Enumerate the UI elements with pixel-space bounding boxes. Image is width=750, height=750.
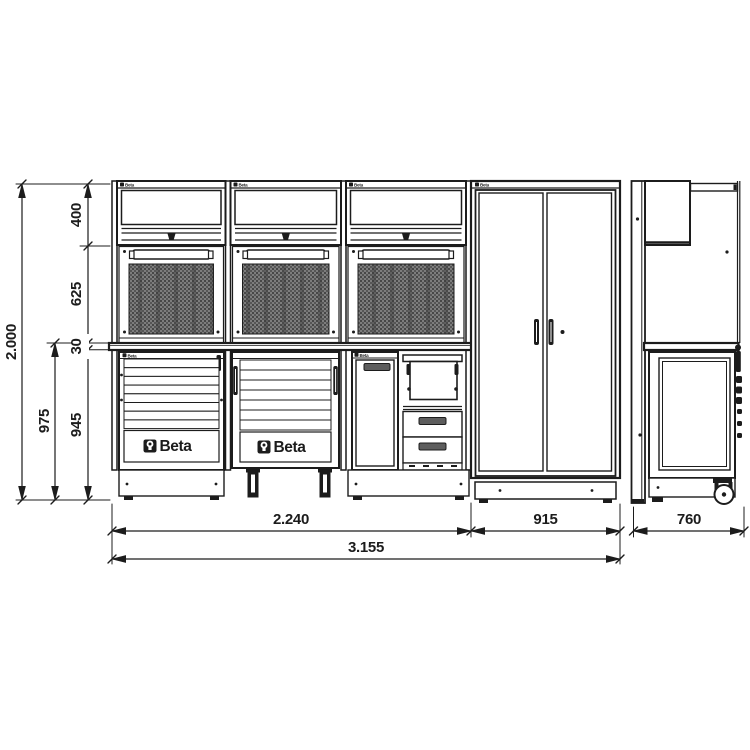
tall-cabinet: Beta (471, 181, 620, 503)
brand-text: Beta (239, 183, 249, 188)
dim-base-cabinet-label: 945 (68, 413, 85, 437)
wall-cabinet-2: Beta (231, 181, 342, 245)
wall-cabinet-3: Beta (346, 181, 466, 245)
caster-side (713, 478, 734, 504)
left-door (479, 193, 543, 471)
dim-tall-cabinet-width-label: 915 (533, 511, 557, 528)
waste-bin-module (403, 355, 462, 470)
brand-text: Beta (128, 353, 138, 358)
worktop-side (644, 343, 739, 350)
drawer-stack (124, 359, 219, 429)
brand-text: Beta (354, 183, 364, 188)
dim-bench-width-label: 2.240 (273, 511, 309, 528)
beta-logo-big: Beta (258, 439, 307, 456)
front-elevation: Beta Beta Beta (109, 181, 620, 503)
vent-handle (364, 364, 390, 371)
dim-total-width-label: 3.155 (348, 539, 384, 556)
caster-right (318, 468, 332, 498)
cabinet-side (649, 352, 735, 478)
brand-text: Beta (125, 183, 135, 188)
brand-text: Beta (480, 183, 490, 188)
beta-logo-big: Beta (144, 438, 193, 455)
workbench-top (109, 343, 473, 350)
brand-text: Beta (274, 439, 307, 456)
shelf (133, 250, 210, 259)
service-module-bay-3: Beta (348, 352, 469, 500)
dim-panel-label: 625 (68, 282, 85, 306)
workshop-system-drawing: Beta Beta Beta (0, 0, 750, 750)
keyhole (561, 330, 565, 334)
tool-panel-bay-1 (119, 247, 224, 344)
plinth (119, 470, 224, 500)
bin-flap (410, 362, 457, 400)
tool-panel-bay-2 (233, 247, 340, 344)
shelf (362, 250, 450, 259)
hinge-bar (403, 355, 462, 362)
brand-text: Beta (360, 353, 370, 358)
plinth (348, 470, 469, 500)
tool-panel-bay-3 (348, 247, 464, 344)
technical-drawing-page: Beta Beta Beta (0, 0, 750, 750)
dim-total-height-label: 2.000 (3, 324, 20, 360)
dim-worktop-thickness-label: 30 (68, 338, 85, 354)
caster-left (246, 468, 260, 498)
dim-worktop-height-label: 975 (36, 409, 53, 433)
drawer-handle (419, 443, 446, 450)
canopy-rail (691, 184, 738, 192)
wall-cabinet-1: Beta (117, 181, 226, 245)
dim-depth-label: 760 (677, 511, 701, 528)
shelf (247, 250, 326, 259)
dim-wall-unit-label: 400 (68, 203, 85, 227)
drawer-handle (419, 418, 446, 425)
fixed-drawer-cabinet: Beta Beta (119, 352, 224, 500)
wall-cabinet-depth (645, 181, 690, 245)
narrow-door-cabinet: Beta (352, 352, 398, 470)
brand-text: Beta (160, 438, 193, 455)
right-door (547, 193, 612, 471)
drawer-stack (240, 360, 331, 430)
